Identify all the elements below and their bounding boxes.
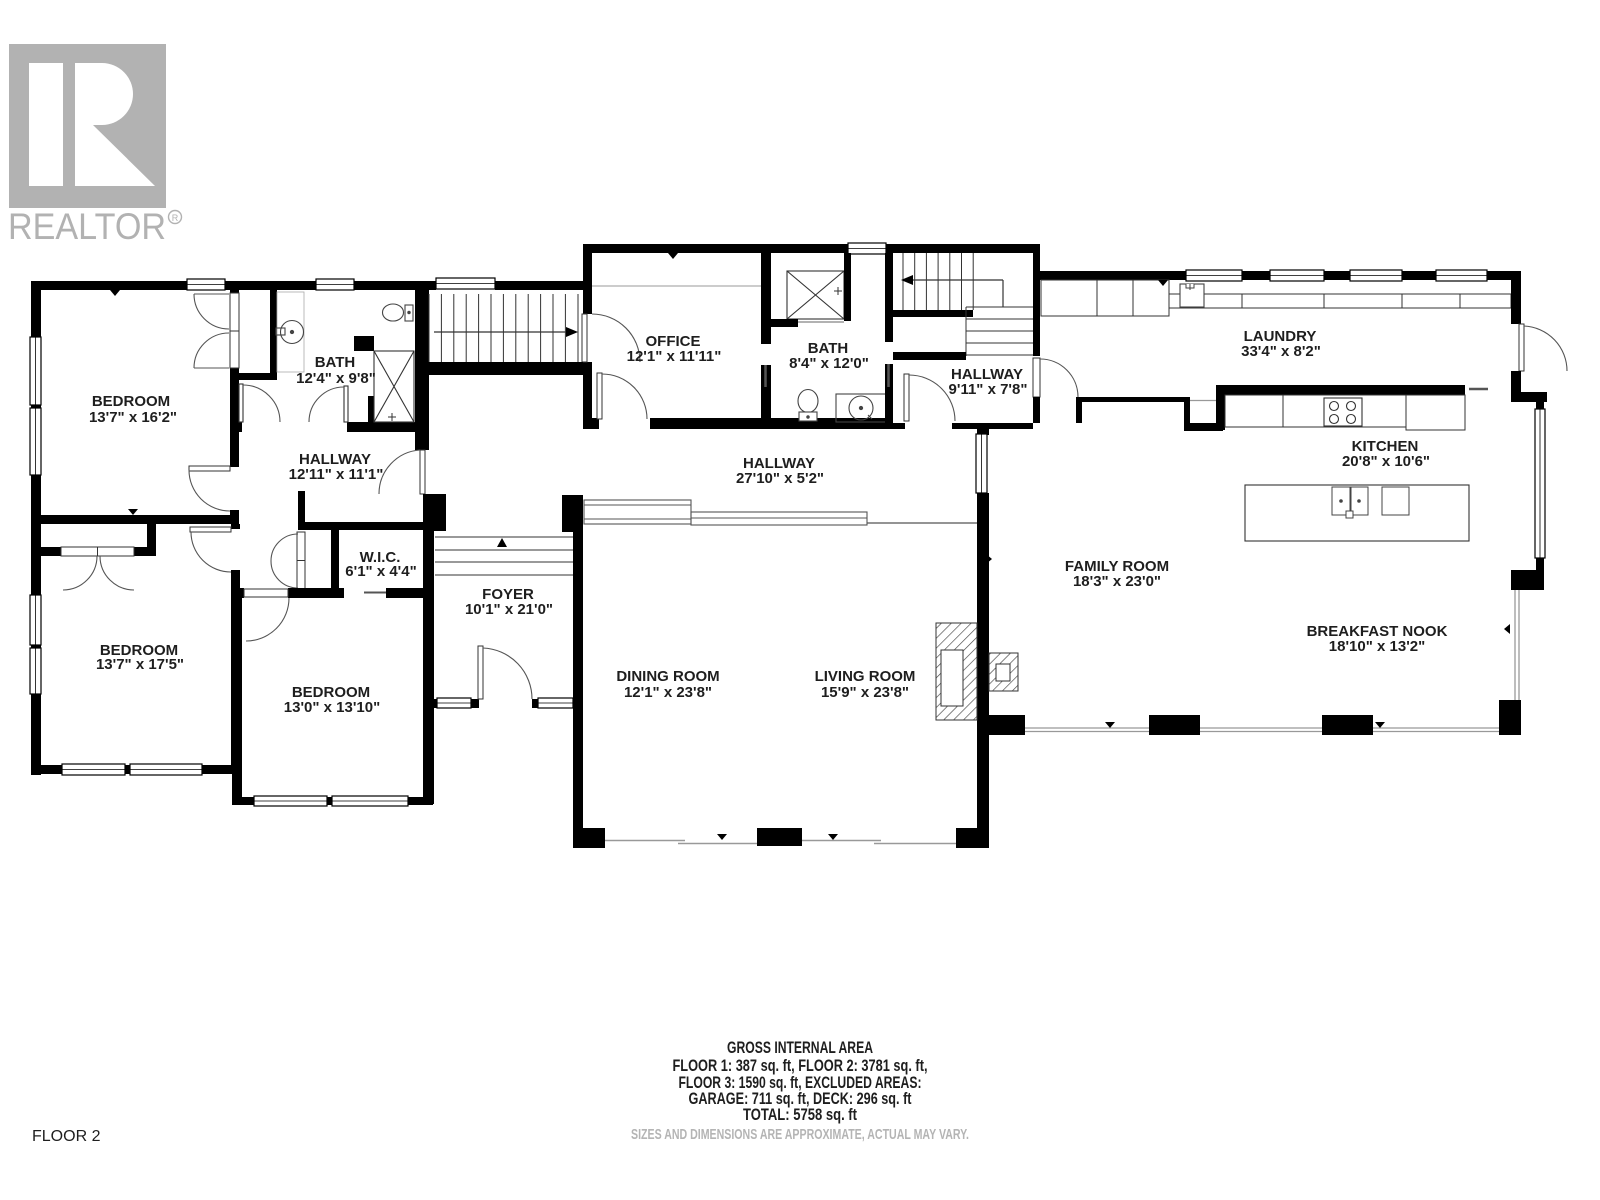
svg-text:6'1" x 4'4": 6'1" x 4'4": [345, 563, 416, 580]
svg-text:GROSS INTERNAL AREA: GROSS INTERNAL AREA: [727, 1038, 873, 1057]
svg-text:15'9" x 23'8": 15'9" x 23'8": [821, 684, 909, 701]
svg-text:12'1" x 11'11": 12'1" x 11'11": [627, 348, 722, 365]
svg-text:8'4" x 12'0": 8'4" x 12'0": [789, 355, 869, 372]
svg-text:R: R: [172, 213, 179, 223]
svg-text:27'10" x 5'2": 27'10" x 5'2": [736, 470, 824, 487]
svg-text:20'8" x 10'6": 20'8" x 10'6": [1342, 453, 1430, 470]
svg-text:TOTAL: 5758 sq. ft: TOTAL: 5758 sq. ft: [743, 1105, 857, 1124]
svg-text:BEDROOM: BEDROOM: [92, 393, 170, 410]
svg-text:13'7" x 17'5": 13'7" x 17'5": [96, 656, 184, 673]
svg-text:18'10" x 13'2": 18'10" x 13'2": [1329, 638, 1425, 655]
svg-text:SIZES AND DIMENSIONS ARE APPRO: SIZES AND DIMENSIONS ARE APPROXIMATE, AC…: [631, 1126, 969, 1143]
svg-text:18'3" x 23'0": 18'3" x 23'0": [1073, 573, 1161, 590]
svg-text:REALTOR: REALTOR: [8, 206, 166, 247]
svg-text:BATH: BATH: [315, 354, 356, 371]
svg-text:13'0" x 13'10": 13'0" x 13'10": [284, 699, 380, 716]
svg-text:FLOOR 2: FLOOR 2: [32, 1128, 101, 1145]
svg-text:12'4" x 9'8": 12'4" x 9'8": [296, 370, 376, 387]
svg-text:DINING ROOM: DINING ROOM: [616, 668, 719, 685]
svg-text:12'11" x 11'1": 12'11" x 11'1": [289, 466, 384, 483]
svg-text:10'1" x 21'0": 10'1" x 21'0": [465, 601, 553, 618]
svg-text:LIVING ROOM: LIVING ROOM: [815, 668, 916, 685]
svg-text:13'7" x 16'2": 13'7" x 16'2": [89, 409, 177, 426]
svg-text:9'11" x 7'8": 9'11" x 7'8": [949, 381, 1028, 398]
svg-text:12'1" x 23'8": 12'1" x 23'8": [624, 684, 712, 701]
svg-text:33'4" x 8'2": 33'4" x 8'2": [1241, 343, 1321, 360]
